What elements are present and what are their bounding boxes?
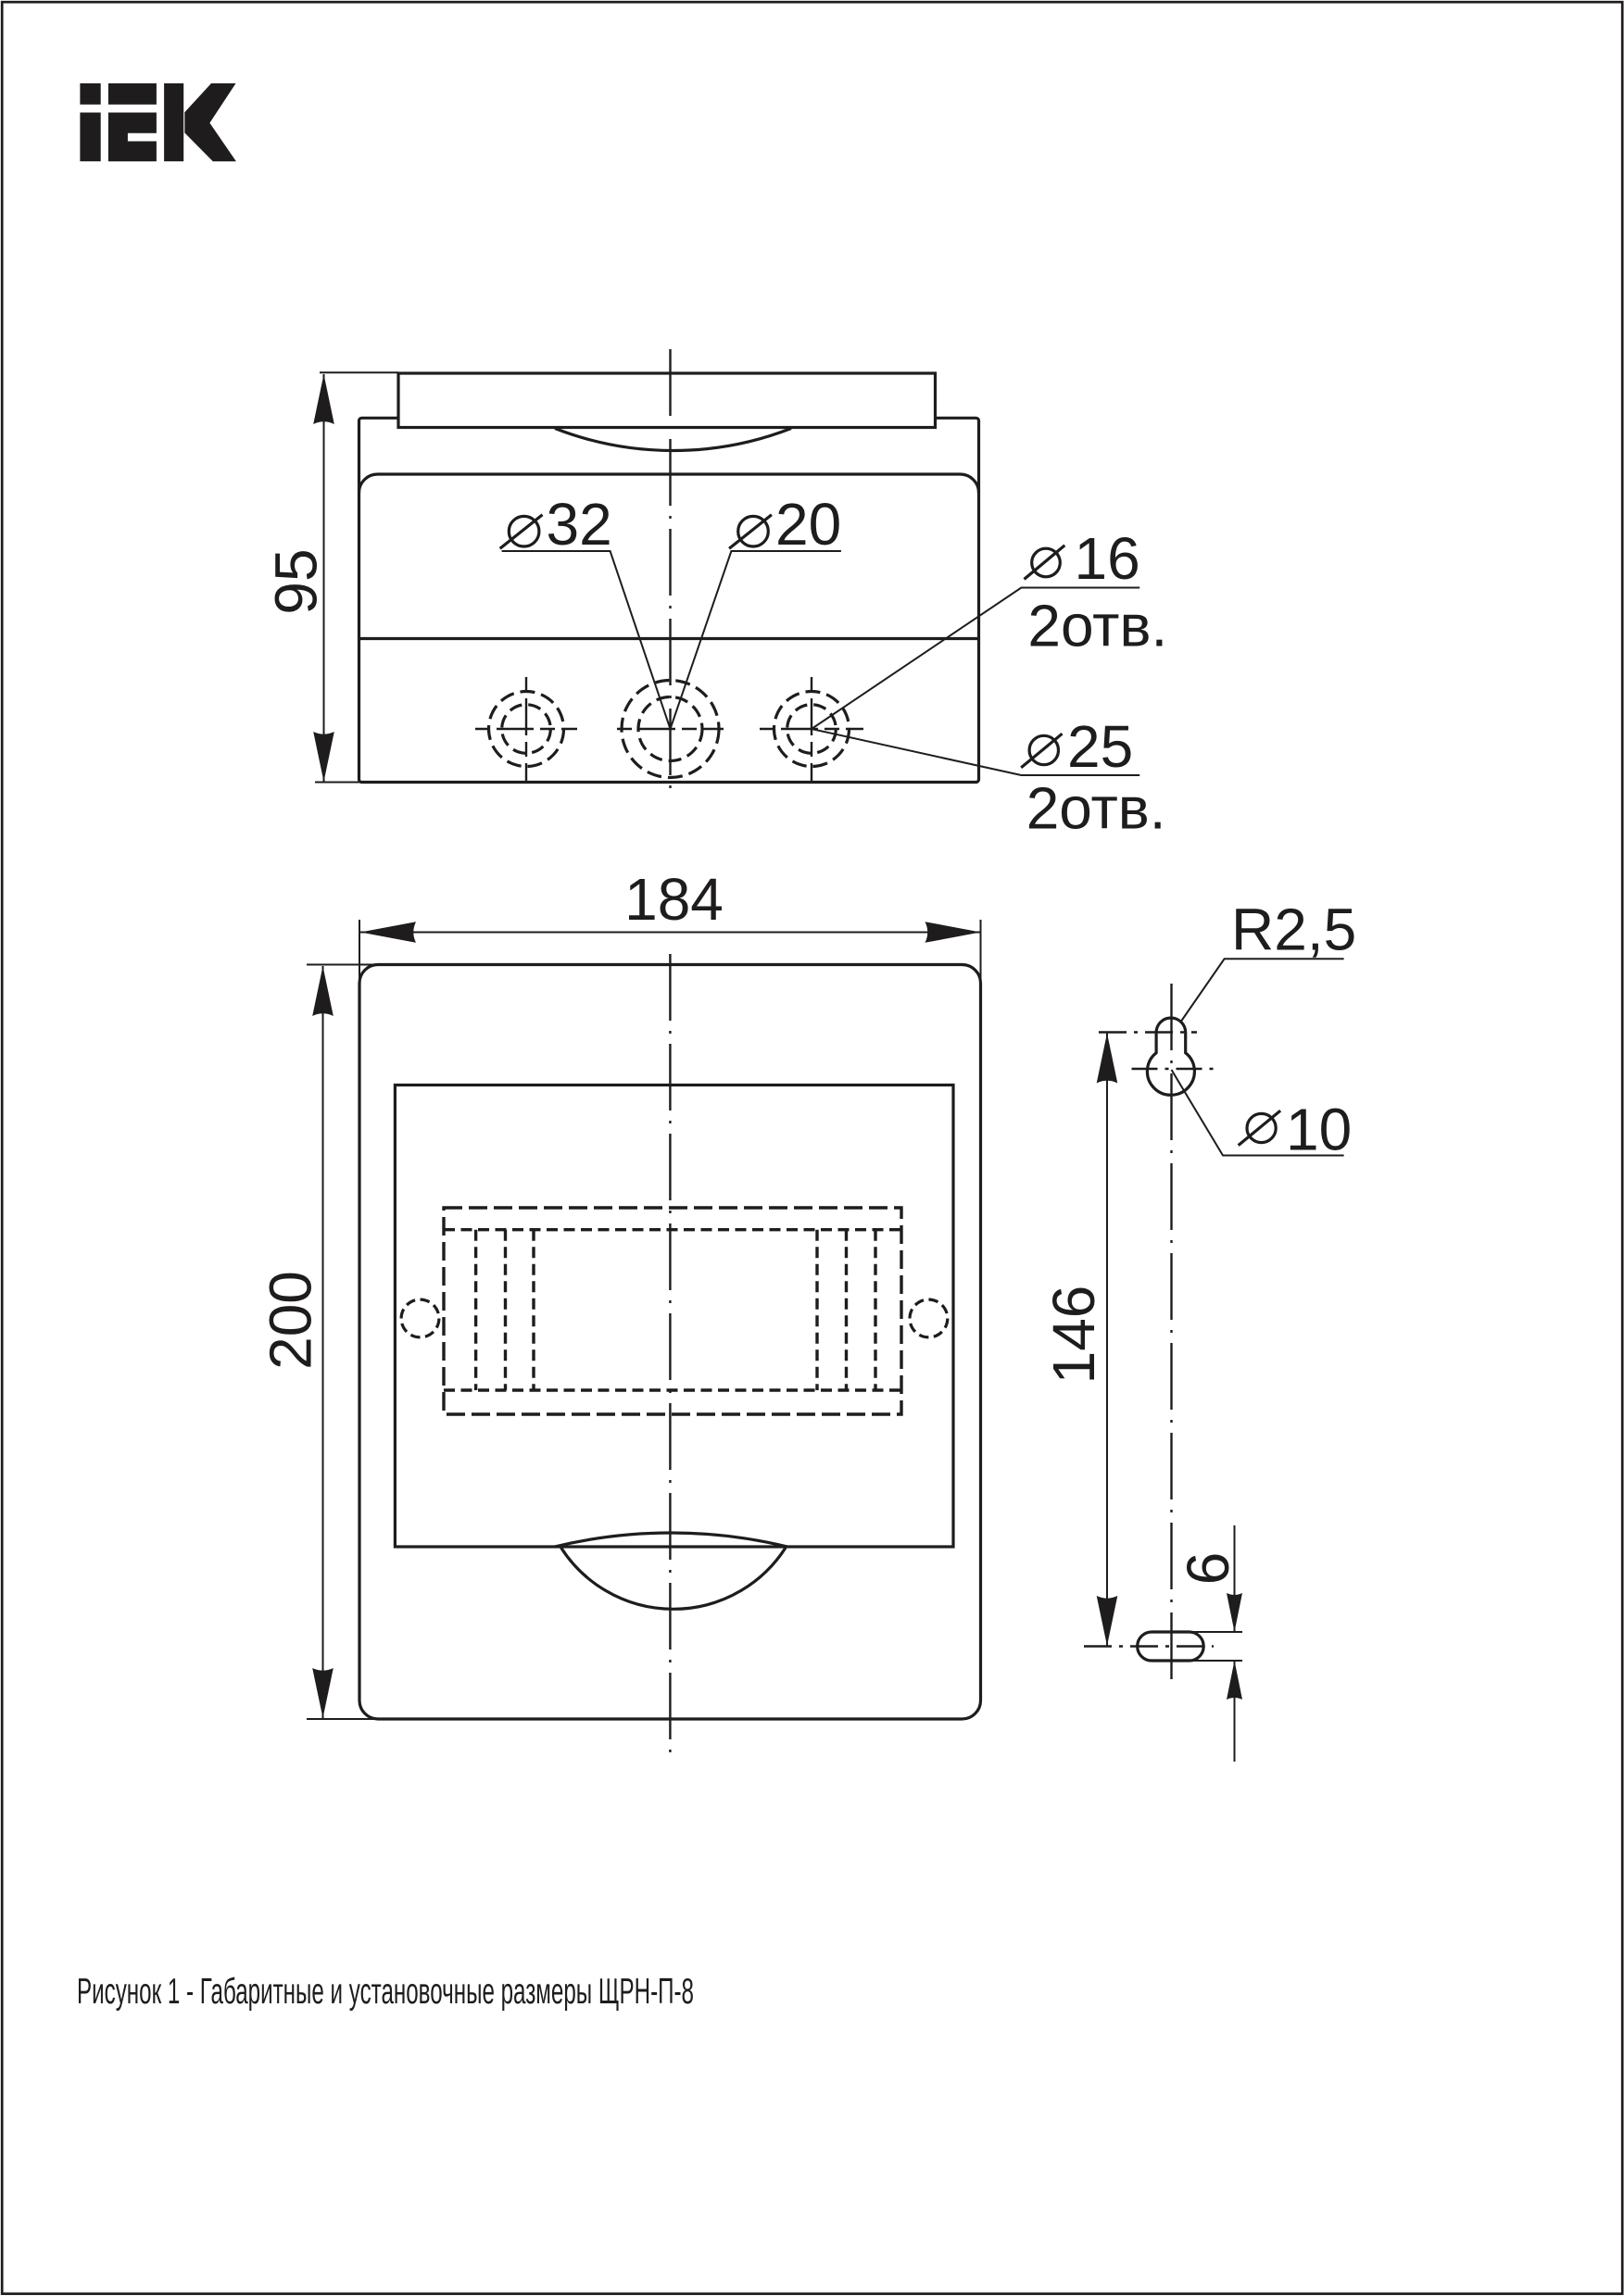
svg-text:16: 16 <box>1075 525 1140 592</box>
svg-text:25: 25 <box>1067 713 1133 780</box>
svg-text:2отв.: 2отв. <box>1027 592 1167 659</box>
svg-text:95: 95 <box>263 548 330 614</box>
svg-text:Рисунок 1 - Габаритные и устан: Рисунок 1 - Габаритные и установочные ра… <box>77 1972 694 2012</box>
svg-text:32: 32 <box>547 491 612 558</box>
svg-text:184: 184 <box>624 866 724 933</box>
svg-text:2отв.: 2отв. <box>1026 774 1166 841</box>
svg-text:10: 10 <box>1286 1097 1352 1163</box>
svg-text:R2,5: R2,5 <box>1231 897 1356 963</box>
svg-text:20: 20 <box>775 491 841 558</box>
svg-text:200: 200 <box>258 1271 324 1370</box>
svg-text:146: 146 <box>1040 1286 1107 1385</box>
svg-text:6: 6 <box>1175 1552 1241 1586</box>
